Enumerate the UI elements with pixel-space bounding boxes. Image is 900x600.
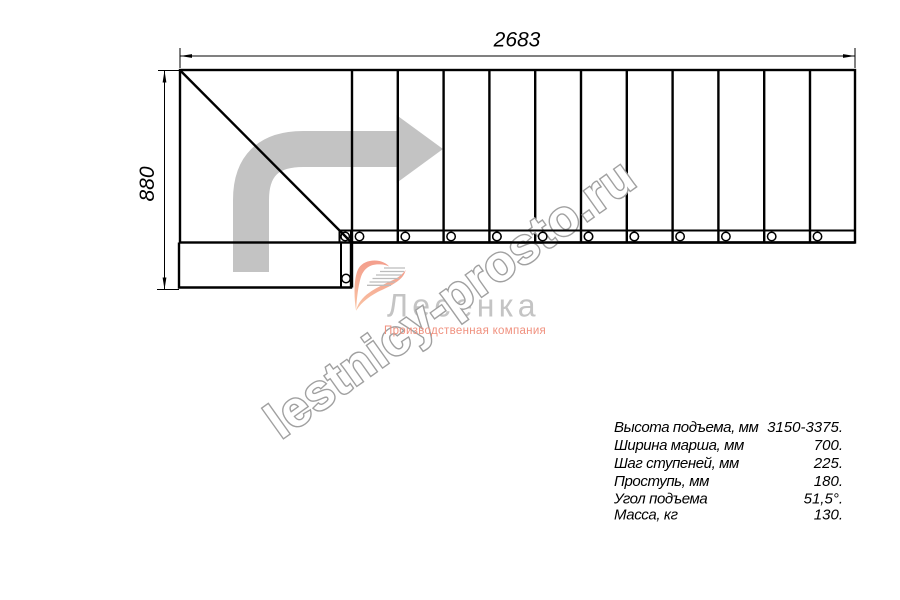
svg-text:Масса, кг: Масса, кг: [614, 507, 679, 524]
svg-text:Ширина марша, мм: Ширина марша, мм: [614, 437, 744, 454]
svg-text:2683: 2683: [493, 29, 541, 52]
svg-text:225.: 225.: [813, 455, 843, 472]
svg-text:700.: 700.: [814, 437, 843, 454]
svg-text:Производственная компания: Производственная компания: [384, 325, 546, 337]
svg-text:880: 880: [136, 166, 159, 201]
svg-text:130.: 130.: [814, 507, 843, 524]
svg-text:Угол подъема: Угол подъема: [613, 491, 707, 508]
svg-text:Проступь, мм: Проступь, мм: [614, 473, 709, 490]
svg-text:Высота подъема, мм: Высота подъема, мм: [614, 419, 759, 436]
svg-text:51,5°.: 51,5°.: [804, 491, 843, 508]
svg-text:180.: 180.: [814, 473, 843, 490]
svg-text:Шаг ступеней, мм: Шаг ступеней, мм: [614, 455, 739, 472]
svg-text:3150-3375.: 3150-3375.: [767, 419, 843, 436]
